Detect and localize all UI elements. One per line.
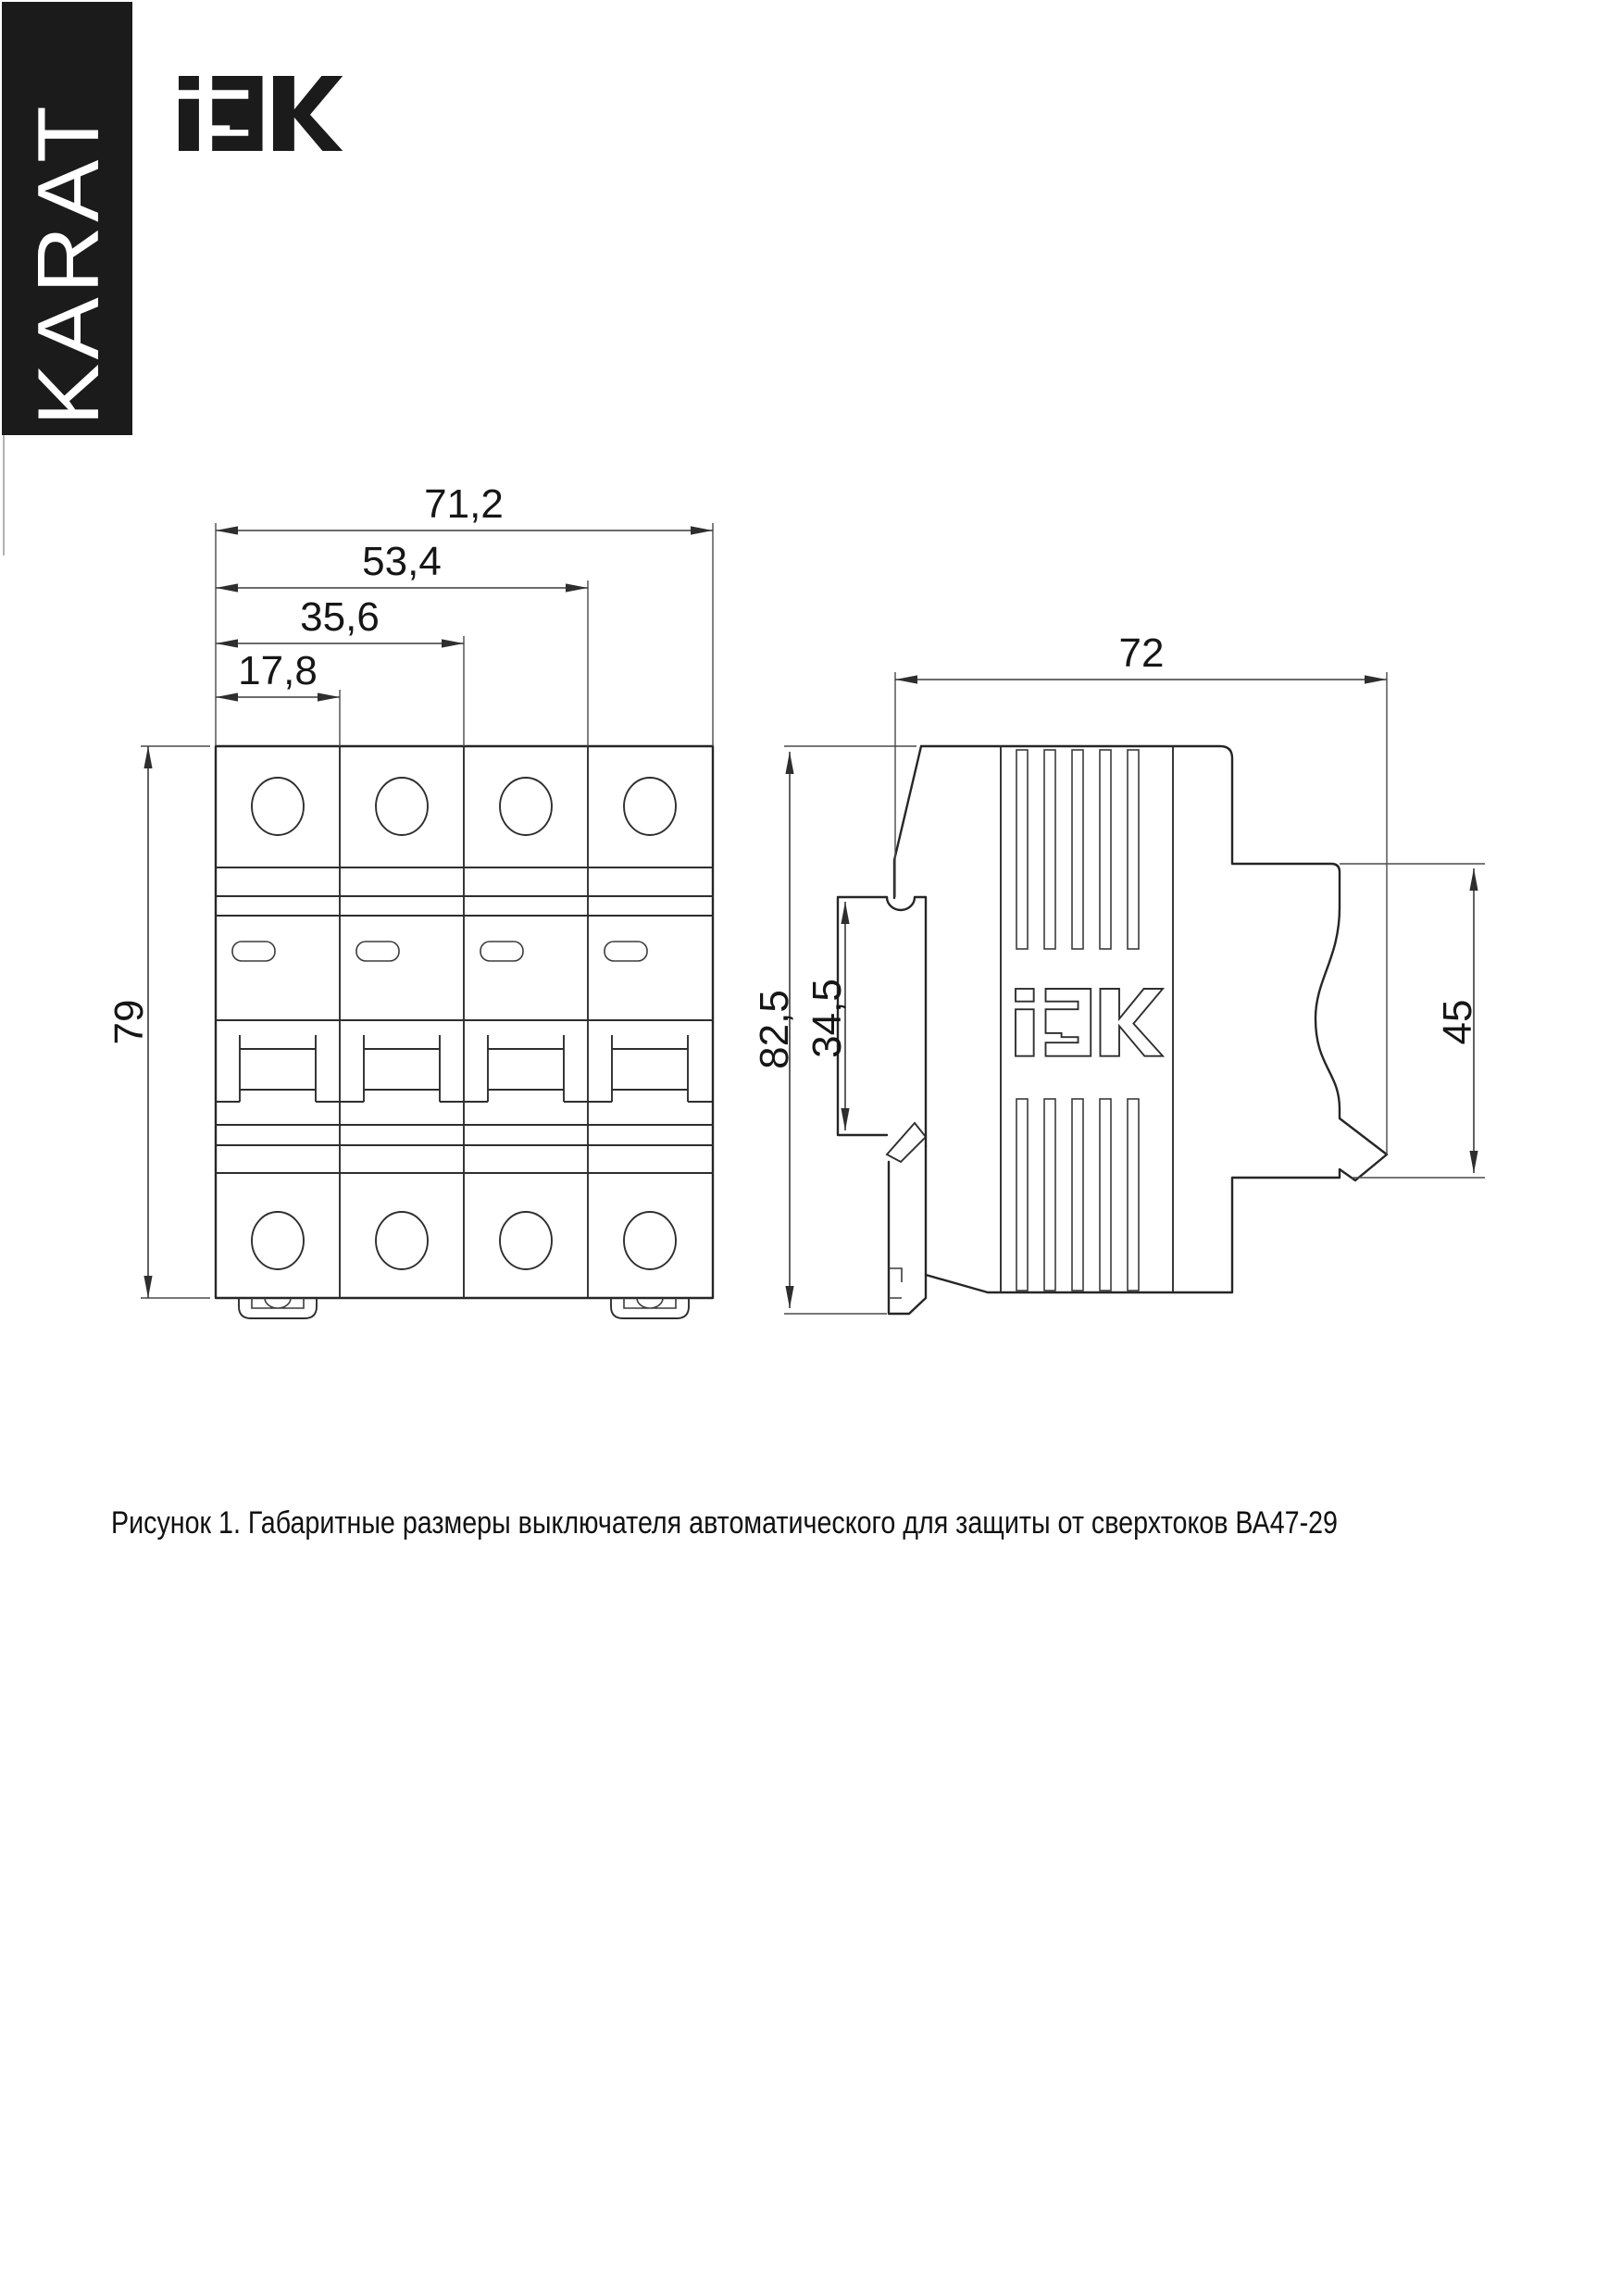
karat-banner: KARAT	[2, 2, 132, 435]
dimension-label-71-2: 71,2	[424, 481, 504, 527]
iek-logo-e	[212, 76, 262, 151]
technical-drawing-canvas: KARAT IEK	[0, 0, 1621, 2296]
scanned-drawing-page: KARAT IEK	[0, 0, 1621, 2296]
iek-logo-i-dot	[179, 76, 199, 90]
karat-logo-text: KARAT	[19, 102, 117, 426]
dimension-label-45: 45	[1435, 1000, 1480, 1045]
dimension-label-53-4: 53,4	[362, 539, 442, 584]
dimension-label-79: 79	[106, 1000, 152, 1045]
iek-logo-i-stem	[179, 99, 199, 151]
dimension-label-34-5: 34,5	[804, 979, 850, 1058]
dimension-label-82-5: 82,5	[752, 990, 797, 1069]
dimension-label-35-6: 35,6	[300, 594, 380, 640]
dimension-label-17-8: 17,8	[238, 648, 318, 693]
dimension-label-72: 72	[1119, 630, 1165, 676]
figure-caption: Рисунок 1. Габаритные размеры выключател…	[111, 1505, 1338, 1541]
